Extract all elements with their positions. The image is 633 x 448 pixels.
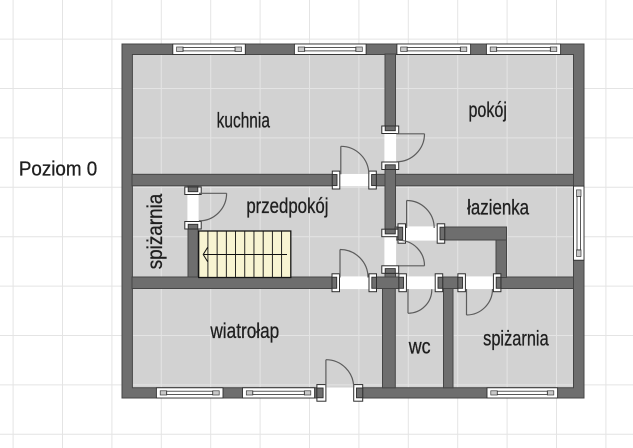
svg-text:pokój: pokój [469, 98, 507, 122]
svg-text:łazienka: łazienka [467, 197, 529, 220]
svg-text:kuchnia: kuchnia [217, 108, 271, 132]
svg-text:wiatrołap: wiatrołap [209, 321, 279, 344]
svg-text:Poziom 0: Poziom 0 [19, 158, 98, 181]
svg-text:wc: wc [408, 335, 431, 359]
svg-text:spiżarnia: spiżarnia [144, 193, 167, 269]
svg-text:przedpokój: przedpokój [246, 195, 328, 218]
svg-text:spiżarnia: spiżarnia [483, 327, 549, 350]
